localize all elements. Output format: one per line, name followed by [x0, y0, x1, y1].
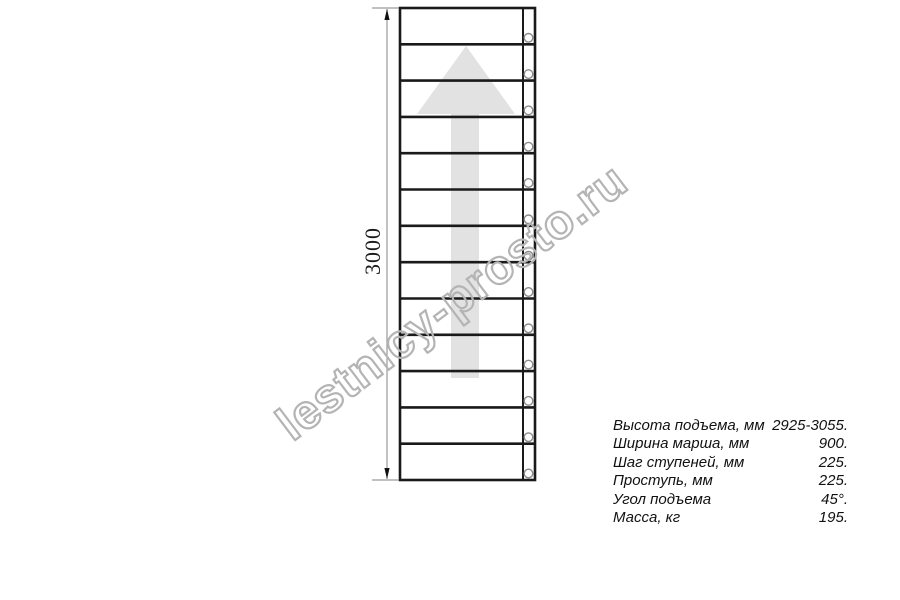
mount-hole-icon — [524, 433, 533, 442]
spec-row: Ширина марша, мм 900. — [613, 435, 848, 453]
spec-value: 45°. — [821, 491, 848, 509]
spec-label: Ширина марша, мм — [613, 435, 749, 453]
mount-hole-icon — [524, 142, 533, 151]
mount-hole-icon — [524, 288, 533, 297]
dimension: 3000 — [360, 8, 399, 480]
spec-table: Высота подъема, мм 2925-3055. Ширина мар… — [613, 417, 848, 527]
mount-hole-icon — [524, 70, 533, 79]
spec-row: Угол подъема 45°. — [613, 491, 848, 509]
spec-row: Высота подъема, мм 2925-3055. — [613, 417, 848, 435]
spec-row: Масса, кг 195. — [613, 509, 848, 527]
mount-hole-icon — [524, 469, 533, 478]
spec-value: 195. — [819, 509, 848, 527]
mount-hole-icon — [524, 179, 533, 188]
spec-row: Шаг ступеней, мм 225. — [613, 454, 848, 472]
spec-value: 2925-3055. — [772, 417, 848, 435]
spec-row: Проступь, мм 225. — [613, 472, 848, 490]
spec-label: Шаг ступеней, мм — [613, 454, 744, 472]
mount-hole-icon — [524, 324, 533, 333]
mount-hole-icon — [524, 397, 533, 406]
spec-value: 900. — [819, 435, 848, 453]
spec-label: Масса, кг — [613, 509, 680, 527]
mount-hole-icon — [524, 34, 533, 43]
spec-value: 225. — [819, 454, 848, 472]
arrowhead-down-icon — [384, 468, 389, 479]
spec-label: Проступь, мм — [613, 472, 713, 490]
spec-label: Угол подъема — [613, 491, 711, 509]
arrowhead-up-icon — [384, 9, 389, 20]
spec-label: Высота подъема, мм — [613, 417, 765, 435]
mount-hole-icon — [524, 360, 533, 369]
page: 3000 lestnicy-prosto.ru Высота подъема, … — [0, 0, 900, 600]
mount-hole-icon — [524, 106, 533, 115]
dimension-label: 3000 — [360, 227, 385, 275]
spec-value: 225. — [819, 472, 848, 490]
